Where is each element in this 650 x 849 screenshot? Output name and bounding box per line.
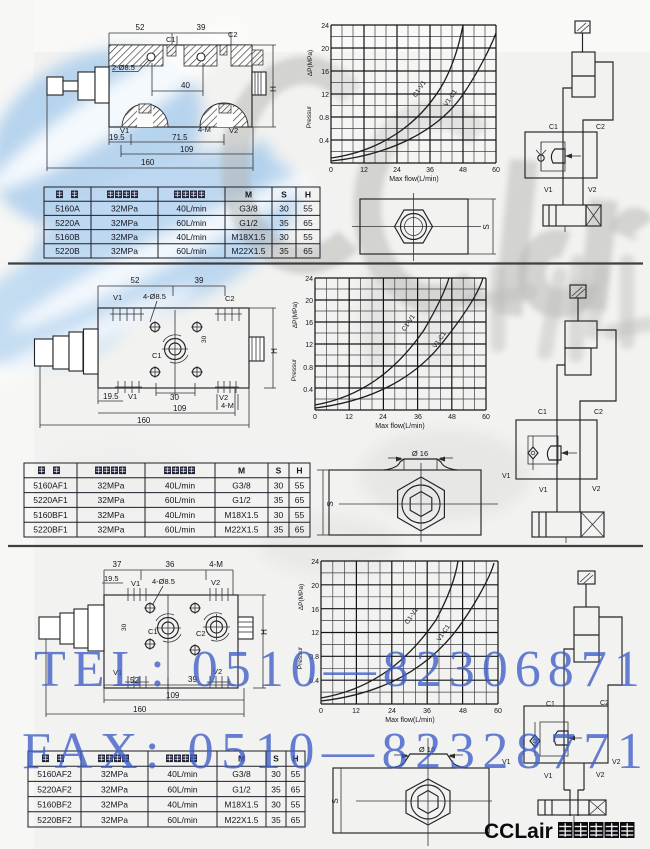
svg-text:C2: C2 bbox=[225, 294, 235, 303]
svg-text:160: 160 bbox=[137, 416, 151, 425]
svg-text:16: 16 bbox=[305, 320, 313, 327]
svg-text:60L/min: 60L/min bbox=[167, 815, 198, 825]
svg-text:5220AF2: 5220AF2 bbox=[37, 784, 72, 794]
svg-text:5220A: 5220A bbox=[55, 218, 80, 228]
svg-text:60L/min: 60L/min bbox=[165, 525, 196, 535]
svg-text:30: 30 bbox=[121, 623, 128, 631]
svg-text:C2: C2 bbox=[594, 409, 603, 416]
svg-text:H: H bbox=[260, 629, 269, 635]
svg-text:65: 65 bbox=[291, 784, 301, 794]
svg-text:S: S bbox=[281, 190, 287, 200]
svg-text:35: 35 bbox=[271, 815, 281, 825]
svg-text:19.5: 19.5 bbox=[103, 392, 119, 401]
svg-text:35: 35 bbox=[271, 784, 281, 794]
svg-text:40L/min: 40L/min bbox=[167, 800, 198, 810]
svg-text:4-M: 4-M bbox=[198, 125, 211, 134]
svg-text:C2: C2 bbox=[228, 30, 238, 39]
svg-text:0: 0 bbox=[313, 414, 317, 421]
svg-text:H: H bbox=[296, 466, 302, 476]
svg-text:0.4: 0.4 bbox=[319, 138, 329, 145]
svg-text:32MPa: 32MPa bbox=[98, 525, 125, 535]
svg-text:71.5: 71.5 bbox=[172, 133, 188, 142]
svg-text:37: 37 bbox=[113, 560, 122, 569]
svg-text:0.4: 0.4 bbox=[303, 387, 313, 394]
svg-text:32MPa: 32MPa bbox=[98, 480, 125, 490]
svg-text:H: H bbox=[269, 86, 278, 92]
svg-text:V2: V2 bbox=[592, 486, 601, 493]
svg-text:G3/8: G3/8 bbox=[232, 480, 251, 490]
svg-text:30: 30 bbox=[274, 480, 284, 490]
svg-text:24: 24 bbox=[305, 276, 313, 283]
svg-text:12: 12 bbox=[305, 342, 313, 349]
svg-text:65: 65 bbox=[291, 815, 301, 825]
svg-text:160: 160 bbox=[133, 705, 147, 714]
svg-text:Pressur: Pressur bbox=[306, 105, 313, 128]
svg-text:2-Ø8.5: 2-Ø8.5 bbox=[112, 63, 135, 72]
svg-text:24: 24 bbox=[321, 23, 329, 30]
svg-text:M22X1.5: M22X1.5 bbox=[224, 525, 258, 535]
svg-text:48: 48 bbox=[459, 708, 467, 715]
svg-text:65: 65 bbox=[295, 495, 305, 505]
svg-text:5220BF1: 5220BF1 bbox=[33, 525, 68, 535]
svg-text:40L/min: 40L/min bbox=[176, 204, 207, 214]
svg-text:60: 60 bbox=[494, 708, 502, 715]
svg-text:M22X1.5: M22X1.5 bbox=[224, 815, 258, 825]
svg-text:65: 65 bbox=[303, 218, 313, 228]
svg-text:V1: V1 bbox=[544, 187, 553, 194]
svg-text:0.8: 0.8 bbox=[319, 115, 329, 122]
svg-text:48: 48 bbox=[459, 167, 467, 174]
svg-text:55: 55 bbox=[291, 800, 301, 810]
svg-text:32MPa: 32MPa bbox=[98, 510, 125, 520]
svg-text:24: 24 bbox=[393, 167, 401, 174]
svg-text:G1/2: G1/2 bbox=[239, 218, 258, 228]
svg-text:0: 0 bbox=[329, 167, 333, 174]
svg-text:0: 0 bbox=[319, 708, 323, 715]
svg-text:36: 36 bbox=[166, 560, 175, 569]
svg-text:5220BF2: 5220BF2 bbox=[37, 815, 72, 825]
svg-text:32MPa: 32MPa bbox=[101, 815, 128, 825]
svg-text:60L/min: 60L/min bbox=[176, 218, 207, 228]
svg-text:40L/min: 40L/min bbox=[176, 232, 207, 242]
svg-text:C1: C1 bbox=[549, 124, 558, 131]
svg-text:M: M bbox=[245, 190, 252, 200]
svg-text:52: 52 bbox=[136, 23, 145, 32]
svg-text:39: 39 bbox=[197, 23, 206, 32]
svg-text:C2: C2 bbox=[196, 629, 206, 638]
svg-text:C1: C1 bbox=[538, 409, 547, 416]
svg-text:5160AF1: 5160AF1 bbox=[33, 480, 68, 490]
svg-text:V1: V1 bbox=[131, 579, 140, 588]
svg-text:ΔP(MPa): ΔP(MPa) bbox=[298, 584, 305, 610]
svg-text:16: 16 bbox=[311, 607, 319, 614]
svg-text:20: 20 bbox=[305, 298, 313, 305]
svg-text:4-Ø8.5: 4-Ø8.5 bbox=[152, 577, 175, 586]
svg-text:60: 60 bbox=[492, 167, 500, 174]
svg-text:Pressur: Pressur bbox=[291, 358, 298, 381]
svg-text:12: 12 bbox=[311, 630, 319, 637]
svg-text:32MPa: 32MPa bbox=[111, 232, 138, 242]
svg-text:12: 12 bbox=[352, 708, 360, 715]
svg-text:36: 36 bbox=[423, 708, 431, 715]
svg-text:Max flow(L/min): Max flow(L/min) bbox=[375, 423, 424, 430]
svg-text:H: H bbox=[305, 190, 311, 200]
svg-text:48: 48 bbox=[448, 414, 456, 421]
svg-text:0.8: 0.8 bbox=[303, 365, 313, 372]
svg-text:16: 16 bbox=[321, 69, 329, 76]
svg-text:30: 30 bbox=[279, 204, 289, 214]
svg-text:4-Ø8.5: 4-Ø8.5 bbox=[143, 292, 166, 301]
svg-text:V2: V2 bbox=[229, 126, 238, 135]
svg-text:32MPa: 32MPa bbox=[111, 246, 138, 256]
svg-text:Ø 16: Ø 16 bbox=[412, 449, 428, 458]
svg-text:35: 35 bbox=[279, 218, 289, 228]
svg-text:32MPa: 32MPa bbox=[101, 784, 128, 794]
svg-text:40L/min: 40L/min bbox=[165, 480, 196, 490]
svg-text:60L/min: 60L/min bbox=[167, 784, 198, 794]
svg-text:24: 24 bbox=[311, 559, 319, 566]
svg-text:32MPa: 32MPa bbox=[101, 800, 128, 810]
svg-text:60L/min: 60L/min bbox=[165, 495, 196, 505]
svg-text:V1: V1 bbox=[113, 293, 122, 302]
svg-text:55: 55 bbox=[295, 480, 305, 490]
svg-text:V1: V1 bbox=[539, 487, 548, 494]
svg-text:19.5: 19.5 bbox=[104, 574, 119, 583]
svg-text:S: S bbox=[276, 466, 282, 476]
svg-text:36: 36 bbox=[414, 414, 422, 421]
svg-text:40L/min: 40L/min bbox=[165, 510, 196, 520]
svg-text:39: 39 bbox=[195, 276, 204, 285]
svg-text:160: 160 bbox=[141, 158, 155, 167]
svg-text:M18X1.5: M18X1.5 bbox=[224, 800, 258, 810]
svg-text:30: 30 bbox=[170, 393, 179, 402]
svg-text:55: 55 bbox=[295, 510, 305, 520]
svg-text:32MPa: 32MPa bbox=[98, 495, 125, 505]
svg-text:24: 24 bbox=[379, 414, 387, 421]
svg-text:H: H bbox=[270, 348, 279, 354]
svg-text:30: 30 bbox=[279, 232, 289, 242]
svg-text:60: 60 bbox=[482, 414, 490, 421]
svg-text:C1: C1 bbox=[546, 701, 555, 708]
svg-text:30: 30 bbox=[271, 800, 281, 810]
svg-text:35: 35 bbox=[279, 246, 289, 256]
svg-text:20: 20 bbox=[321, 46, 329, 53]
svg-text:30: 30 bbox=[274, 510, 284, 520]
svg-text:55: 55 bbox=[303, 232, 313, 242]
svg-text:S: S bbox=[331, 798, 340, 803]
svg-text:V1: V1 bbox=[128, 392, 137, 401]
svg-text:19.5: 19.5 bbox=[109, 133, 125, 142]
svg-text:30: 30 bbox=[201, 335, 208, 343]
svg-text:35: 35 bbox=[274, 525, 284, 535]
svg-text:ΔP(MPa): ΔP(MPa) bbox=[292, 302, 299, 328]
svg-text:52: 52 bbox=[131, 276, 140, 285]
svg-text:C2: C2 bbox=[596, 124, 605, 131]
svg-text:65: 65 bbox=[295, 525, 305, 535]
svg-text:32MPa: 32MPa bbox=[111, 218, 138, 228]
svg-text:C1: C1 bbox=[166, 35, 176, 44]
svg-text:M18X1.5: M18X1.5 bbox=[231, 232, 265, 242]
svg-text:V2: V2 bbox=[588, 187, 597, 194]
svg-text:12: 12 bbox=[321, 92, 329, 99]
svg-text:G1/2: G1/2 bbox=[232, 784, 251, 794]
svg-text:Max flow(L/min): Max flow(L/min) bbox=[389, 176, 438, 183]
svg-text:4-M: 4-M bbox=[221, 401, 234, 410]
svg-text:ΔP(MPa): ΔP(MPa) bbox=[307, 50, 314, 76]
svg-text:109: 109 bbox=[180, 145, 194, 154]
svg-text:5220AF1: 5220AF1 bbox=[33, 495, 68, 505]
svg-text:109: 109 bbox=[173, 404, 187, 413]
svg-text:20: 20 bbox=[311, 583, 319, 590]
svg-text:5160A: 5160A bbox=[55, 204, 80, 214]
svg-text:60L/min: 60L/min bbox=[176, 246, 207, 256]
svg-text:5160BF2: 5160BF2 bbox=[37, 800, 72, 810]
svg-text:24: 24 bbox=[388, 708, 396, 715]
svg-text:M22X1.5: M22X1.5 bbox=[231, 246, 265, 256]
svg-text:V2: V2 bbox=[211, 578, 220, 587]
svg-text:55: 55 bbox=[303, 204, 313, 214]
svg-text:32MPa: 32MPa bbox=[111, 204, 138, 214]
svg-text:35: 35 bbox=[274, 495, 284, 505]
svg-text:M18X1.5: M18X1.5 bbox=[224, 510, 258, 520]
svg-text:5160B: 5160B bbox=[55, 232, 80, 242]
svg-text:S: S bbox=[326, 501, 335, 506]
svg-text:C1: C1 bbox=[152, 351, 162, 360]
svg-text:G3/8: G3/8 bbox=[239, 204, 258, 214]
svg-text:C1: C1 bbox=[148, 627, 158, 636]
svg-text:5160BF1: 5160BF1 bbox=[33, 510, 68, 520]
svg-text:12: 12 bbox=[345, 414, 353, 421]
svg-text:V1: V1 bbox=[502, 473, 511, 480]
svg-text:G1/2: G1/2 bbox=[232, 495, 251, 505]
svg-text:5220B: 5220B bbox=[55, 246, 80, 256]
svg-text:M: M bbox=[238, 466, 245, 476]
svg-text:40: 40 bbox=[181, 81, 190, 90]
svg-text:S: S bbox=[482, 224, 491, 229]
svg-text:4-M: 4-M bbox=[209, 560, 223, 569]
svg-text:36: 36 bbox=[426, 167, 434, 174]
svg-text:65: 65 bbox=[303, 246, 313, 256]
svg-text:12: 12 bbox=[360, 167, 368, 174]
